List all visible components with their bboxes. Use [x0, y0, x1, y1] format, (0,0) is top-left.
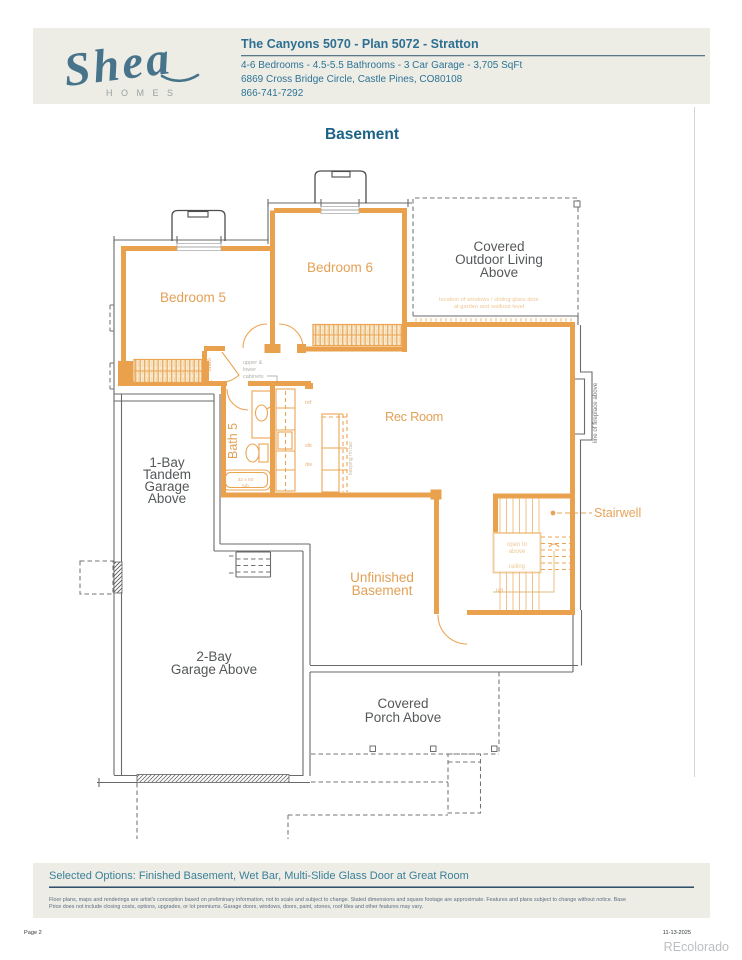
svg-text:Bedroom 5: Bedroom 5 — [160, 290, 226, 305]
svg-text:Basement: Basement — [352, 583, 413, 598]
svg-text:Porch Above: Porch Above — [365, 710, 442, 725]
svg-text:above: above — [509, 549, 526, 555]
svg-text:lower: lower — [243, 367, 256, 373]
svg-text:Bath 5: Bath 5 — [226, 423, 240, 459]
svg-text:up: up — [496, 587, 504, 594]
svg-text:HOMES: HOMES — [106, 88, 182, 98]
svg-text:Stairwell: Stairwell — [594, 506, 641, 520]
svg-text:4-6 Bedrooms - 4.5-5.5 Bathroo: 4-6 Bedrooms - 4.5-5.5 Bathrooms - 3 Car… — [241, 60, 522, 71]
svg-text:Selected Options: Finished Bas: Selected Options: Finished Basement, Wet… — [49, 870, 469, 882]
svg-text:Basement: Basement — [325, 126, 399, 143]
svg-text:cabinets: cabinets — [243, 374, 264, 380]
svg-text:Above: Above — [148, 491, 186, 506]
svg-text:linen: linen — [207, 358, 213, 371]
svg-text:Above: Above — [480, 265, 518, 280]
svg-text:Page 2: Page 2 — [24, 930, 42, 936]
svg-text:6869 Cross Bridge Circle, Cast: 6869 Cross Bridge Circle, Castle Pines, … — [241, 74, 463, 85]
svg-text:Floor plans, maps and renderin: Floor plans, maps and renderings are art… — [49, 897, 626, 903]
svg-text:at garden and walkout level: at garden and walkout level — [454, 304, 525, 310]
svg-text:Covered: Covered — [377, 696, 428, 711]
svg-text:keeping rm bar: keeping rm bar — [348, 441, 354, 475]
svg-text:866-741-7292: 866-741-7292 — [241, 88, 304, 99]
svg-text:open to: open to — [507, 542, 528, 548]
svg-text:REcolorado: REcolorado — [664, 940, 729, 954]
svg-text:Price does not include closing: Price does not include closing costs, op… — [49, 904, 423, 910]
svg-text:line of fireplace above: line of fireplace above — [592, 382, 599, 443]
svg-text:11-13-2025: 11-13-2025 — [663, 930, 691, 936]
svg-text:ref: ref — [305, 400, 312, 406]
svg-text:tub: tub — [242, 483, 249, 489]
svg-text:location of windows / sliding: location of windows / sliding glass door — [439, 297, 539, 303]
svg-text:stk: stk — [305, 443, 312, 449]
svg-text:Rec Room: Rec Room — [385, 409, 443, 424]
svg-text:dw: dw — [305, 462, 312, 468]
svg-text:upper &: upper & — [243, 360, 263, 366]
svg-text:The Canyons 5070 - Plan 5072 -: The Canyons 5070 - Plan 5072 - Stratton — [241, 37, 479, 51]
svg-text:Garage Above: Garage Above — [171, 662, 257, 677]
svg-text:Bedroom 6: Bedroom 6 — [307, 260, 373, 275]
svg-text:railing: railing — [509, 564, 525, 570]
svg-text:32 x 60: 32 x 60 — [238, 477, 254, 483]
